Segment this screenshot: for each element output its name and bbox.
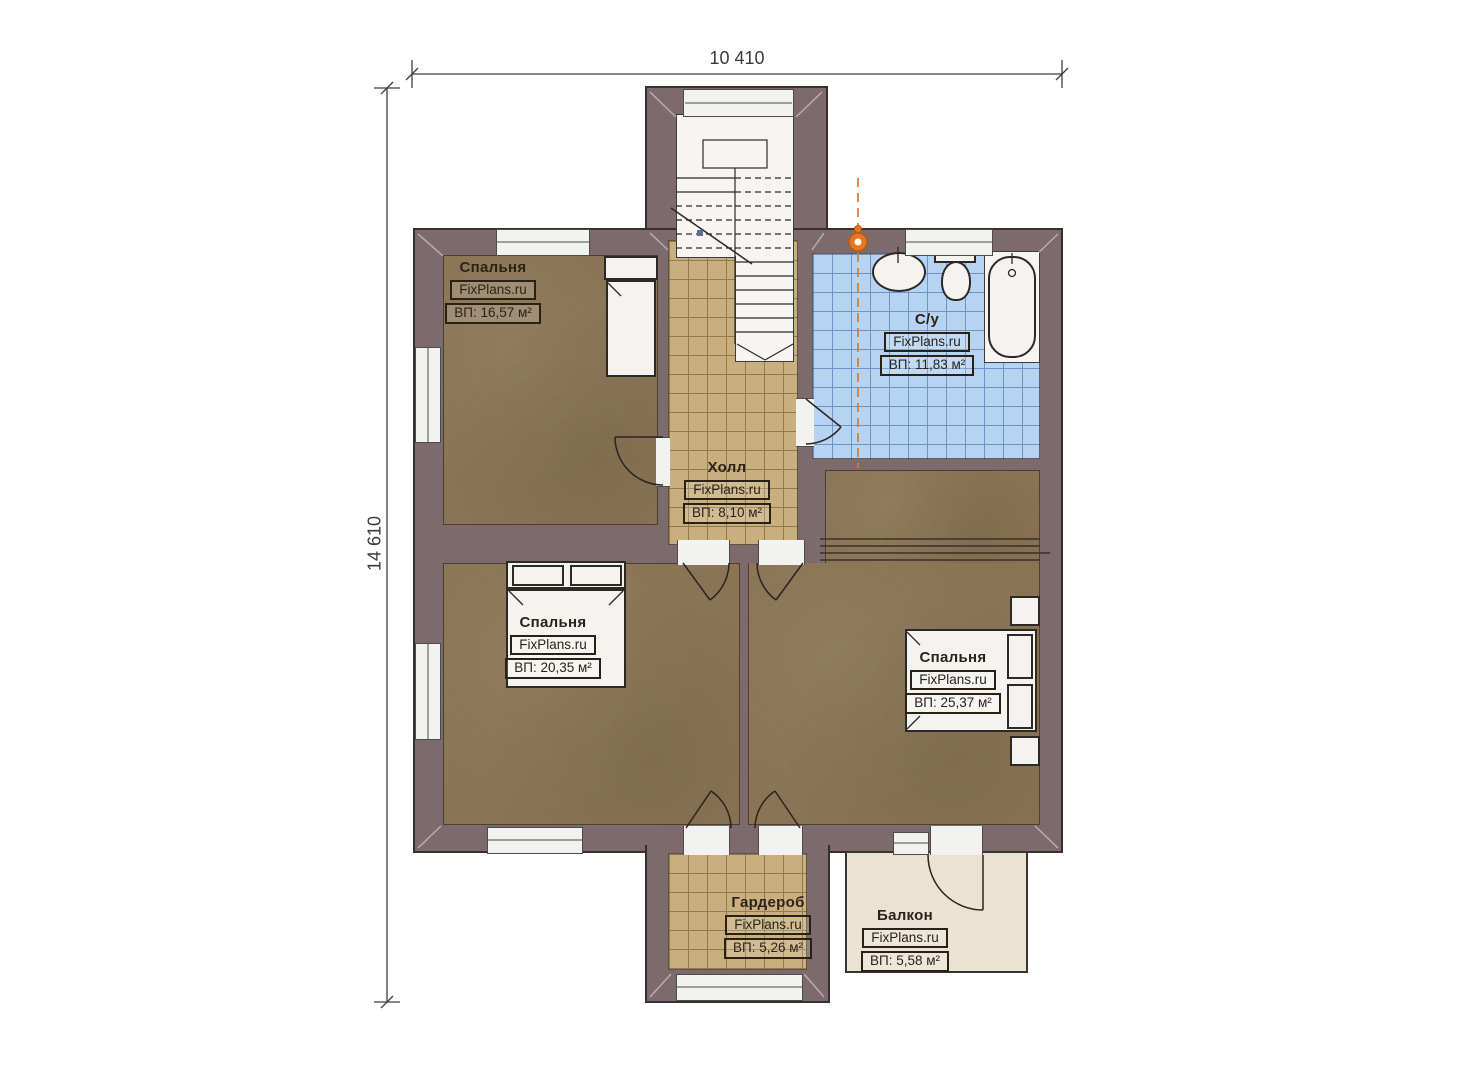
window [496, 229, 590, 256]
dimension-left: 14 610 [365, 499, 386, 589]
room-title: Спальня [468, 615, 638, 632]
room-area: ВП: 8,10 м² [683, 503, 771, 524]
room-label-balcony: Балкон FixPlans.ru ВП: 5,58 м² [820, 908, 990, 972]
pillow [570, 565, 622, 586]
bed-single [606, 280, 656, 377]
nightstand [1010, 596, 1040, 626]
fixplans-badge: FixPlans.ru [725, 915, 811, 936]
toilet-bowl-icon [941, 261, 971, 301]
fixplans-badge: FixPlans.ru [684, 480, 770, 501]
room-label-hall: Холл FixPlans.ru ВП: 8,10 м² [642, 460, 812, 524]
bed-single-headboard [604, 256, 658, 280]
room-title: С/у [842, 312, 1012, 329]
window [415, 347, 441, 443]
dimension-top: 10 410 [692, 48, 782, 69]
window [415, 643, 441, 740]
room-area: ВП: 5,58 м² [861, 951, 949, 972]
room-area: ВП: 11,83 м² [880, 355, 975, 376]
room-area: ВП: 5,26 м² [724, 938, 812, 959]
door-opening-balcony [930, 826, 983, 855]
window [487, 827, 583, 854]
nightstand [1010, 736, 1040, 766]
door-opening-bathroom [796, 398, 814, 447]
window [676, 974, 803, 1001]
door-opening-bedroom-left-to-wardrobe [683, 826, 730, 855]
window [905, 229, 993, 256]
fixplans-badge: FixPlans.ru [910, 670, 996, 691]
bedroom-right-nook-floor [825, 470, 1040, 563]
window [683, 89, 794, 117]
room-label-bedroom-right: Спальня FixPlans.ru ВП: 25,37 м² [868, 650, 1038, 714]
door-opening-hall-to-bedroom-right [758, 540, 805, 565]
stair-lower-flight-floor [735, 256, 794, 362]
door-opening-hall-to-bedroom-left [677, 540, 730, 565]
pillow [512, 565, 564, 586]
door-opening-bedroom-right-to-wardrobe [758, 826, 803, 855]
room-title: Спальня [868, 650, 1038, 667]
room-area: ВП: 20,35 м² [505, 658, 601, 679]
room-area: ВП: 16,57 м² [445, 303, 541, 324]
fixplans-badge: FixPlans.ru [884, 332, 970, 353]
room-title: Холл [642, 460, 812, 477]
fixplans-badge: FixPlans.ru [450, 280, 536, 301]
sink-icon [872, 252, 926, 292]
room-title: Балкон [820, 908, 990, 925]
room-label-bathroom: С/у FixPlans.ru ВП: 11,83 м² [842, 312, 1012, 376]
stairwell-floor [676, 114, 794, 258]
fixplans-badge: FixPlans.ru [862, 928, 948, 949]
floor-plan: 10 410 14 610 Спальня FixPlans.ru ВП: 16… [0, 0, 1473, 1080]
room-area: ВП: 25,37 м² [905, 693, 1001, 714]
room-label-bedroom-top-left: Спальня FixPlans.ru ВП: 16,57 м² [408, 260, 578, 324]
room-title: Спальня [408, 260, 578, 277]
fixplans-badge: FixPlans.ru [510, 635, 596, 656]
room-label-bedroom-middle-left: Спальня FixPlans.ru ВП: 20,35 м² [468, 615, 638, 679]
balcony-window [893, 832, 929, 855]
